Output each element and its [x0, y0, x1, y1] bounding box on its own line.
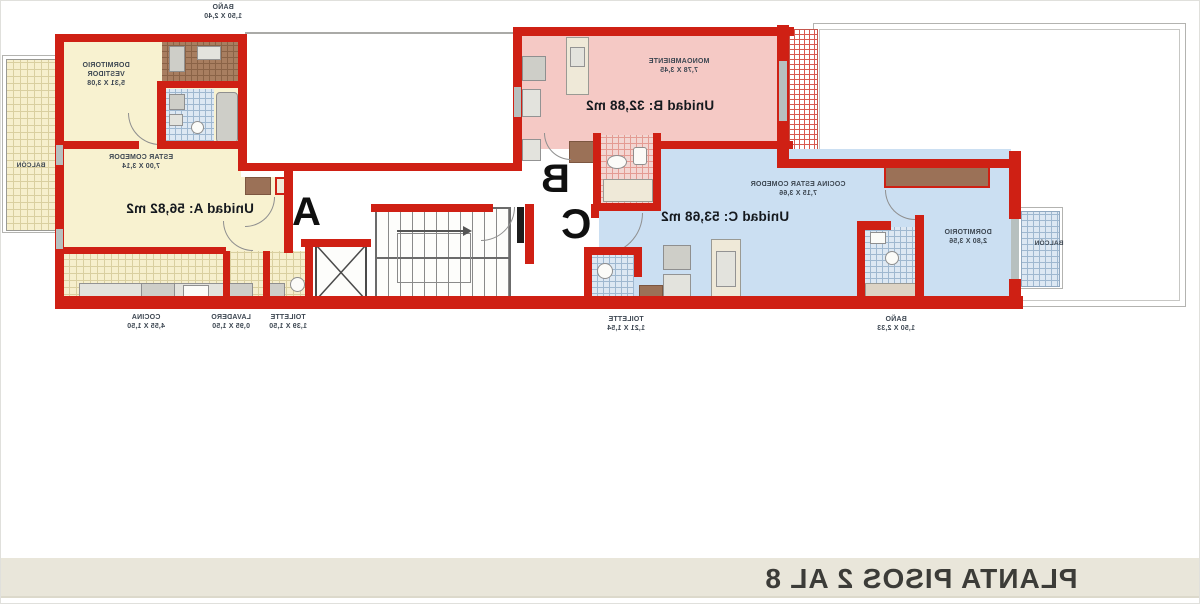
vanity-a: [197, 46, 221, 60]
room-label-cocina-a: COCINA4,55 X 1,50: [105, 313, 187, 331]
room-label-toilette-c: TOILETTE1,21 X 1,54: [595, 315, 657, 333]
wall: [525, 204, 534, 264]
wall: [591, 204, 599, 218]
kitchen-counter-b: [522, 89, 541, 117]
wall: [780, 146, 789, 168]
elevator-x-icon: [317, 246, 365, 299]
door-arc-bath-b: [544, 133, 571, 160]
room-label-bano-a-top: BAÑO1,50 X 2,40: [181, 3, 265, 21]
bath-c-toilet: [885, 251, 899, 265]
room-label-cocina-estar-c: COCINA ESTAR COMEDOR7,15 X 3,66: [743, 180, 853, 198]
wall: [787, 159, 1019, 168]
toilet-a: [191, 121, 204, 134]
stove-b: [522, 56, 546, 81]
floor-plan-canvas: BAÑO1,50 X 2,40DORMITORIOVESTIDOR5,31 X …: [0, 0, 1200, 604]
unit-letter-b: B: [541, 159, 570, 199]
fridge-c-inner: [716, 251, 736, 287]
bath-b-shower: [603, 179, 653, 202]
wall: [157, 81, 247, 88]
unit-b-floor: [521, 35, 779, 149]
wall: [63, 247, 226, 254]
wall: [238, 34, 247, 171]
room-label-balcon-c: BALCÓN: [1023, 240, 1075, 248]
bath-c-sink: [870, 232, 886, 244]
room-label-bano-c: BAÑO1,50 X 2,33: [865, 315, 927, 333]
balcony-a-floor: [6, 59, 60, 231]
wall: [157, 81, 166, 149]
window-gap: [56, 229, 63, 249]
stair-door-panel: [517, 207, 524, 243]
wall: [1009, 151, 1021, 219]
wall: [584, 247, 592, 301]
footer-title: PLANTA PISOS 2 AL 8: [701, 563, 1141, 595]
wall: [857, 221, 891, 230]
wall: [157, 141, 247, 149]
balcony-c-floor: [1021, 211, 1060, 287]
toilette-a-toilet: [290, 277, 305, 292]
wall: [1009, 279, 1021, 309]
toilette-c-washer: [597, 263, 613, 279]
wall: [371, 204, 493, 212]
washing-machine-a: [169, 94, 185, 110]
stair-direction-line: [397, 230, 463, 232]
wall: [55, 296, 1023, 309]
wall: [513, 27, 794, 36]
elevator-shaft: [315, 244, 367, 301]
wall: [238, 163, 521, 171]
unit-c-area-label: Unidad C: 53,68 m2: [649, 209, 801, 224]
unit-letter-c: C: [561, 203, 591, 245]
wall: [263, 251, 270, 301]
wall: [301, 239, 371, 247]
balcony-door-gap-c: [1011, 219, 1019, 279]
wall: [653, 141, 793, 149]
window-gap: [514, 87, 521, 117]
wall: [223, 251, 230, 301]
room-label-estar-comedor-a: ESTAR COMEDOR7,00 X 3,14: [85, 153, 197, 171]
bathtub-a: [169, 46, 185, 72]
room-label-dormitorio-c: DORMITORIO2,80 X 3,56: [929, 228, 1007, 246]
wall: [915, 215, 924, 301]
closet-b: [569, 141, 594, 163]
room-label-monoambiente-b: MONOAMBIENTE7,78 X 3,45: [625, 57, 733, 75]
unit-letter-a: A: [292, 192, 321, 232]
wall: [857, 221, 865, 301]
stair-direction-arrow: [463, 226, 472, 236]
wall: [593, 133, 601, 211]
stair-rail: [397, 233, 471, 283]
kitchen-cabinet-b: [522, 139, 541, 161]
toilette-c-floor: [592, 255, 634, 299]
wall: [305, 247, 313, 301]
room-label-toilette-a: TOILETTE1,39 X 1,50: [257, 313, 319, 331]
wall: [55, 141, 139, 149]
bath-b-toilet: [633, 147, 647, 165]
wall: [55, 34, 247, 42]
room-label-balcon-a: BALCÓN: [5, 162, 57, 170]
sink-a: [169, 114, 183, 126]
shower-a: [216, 92, 238, 143]
courtyard-top-line: [245, 32, 515, 34]
room-label-dormitorio-a: DORMITORIOVESTIDOR5,31 X 3,08: [56, 61, 156, 88]
window-gap: [56, 145, 63, 165]
balcony-b-floor: [789, 29, 818, 165]
unit-b-area-label: Unidad B: 32,88 m2: [569, 98, 731, 113]
wall: [634, 247, 642, 277]
balcony-door-gap-b: [779, 61, 787, 121]
entry-closet-a: [245, 177, 271, 195]
bath-b-sink: [607, 155, 627, 169]
stove-c: [663, 245, 691, 270]
unit-a-area-label: Unidad A: 56,82 m2: [109, 201, 271, 216]
island-sink-b: [570, 47, 585, 67]
